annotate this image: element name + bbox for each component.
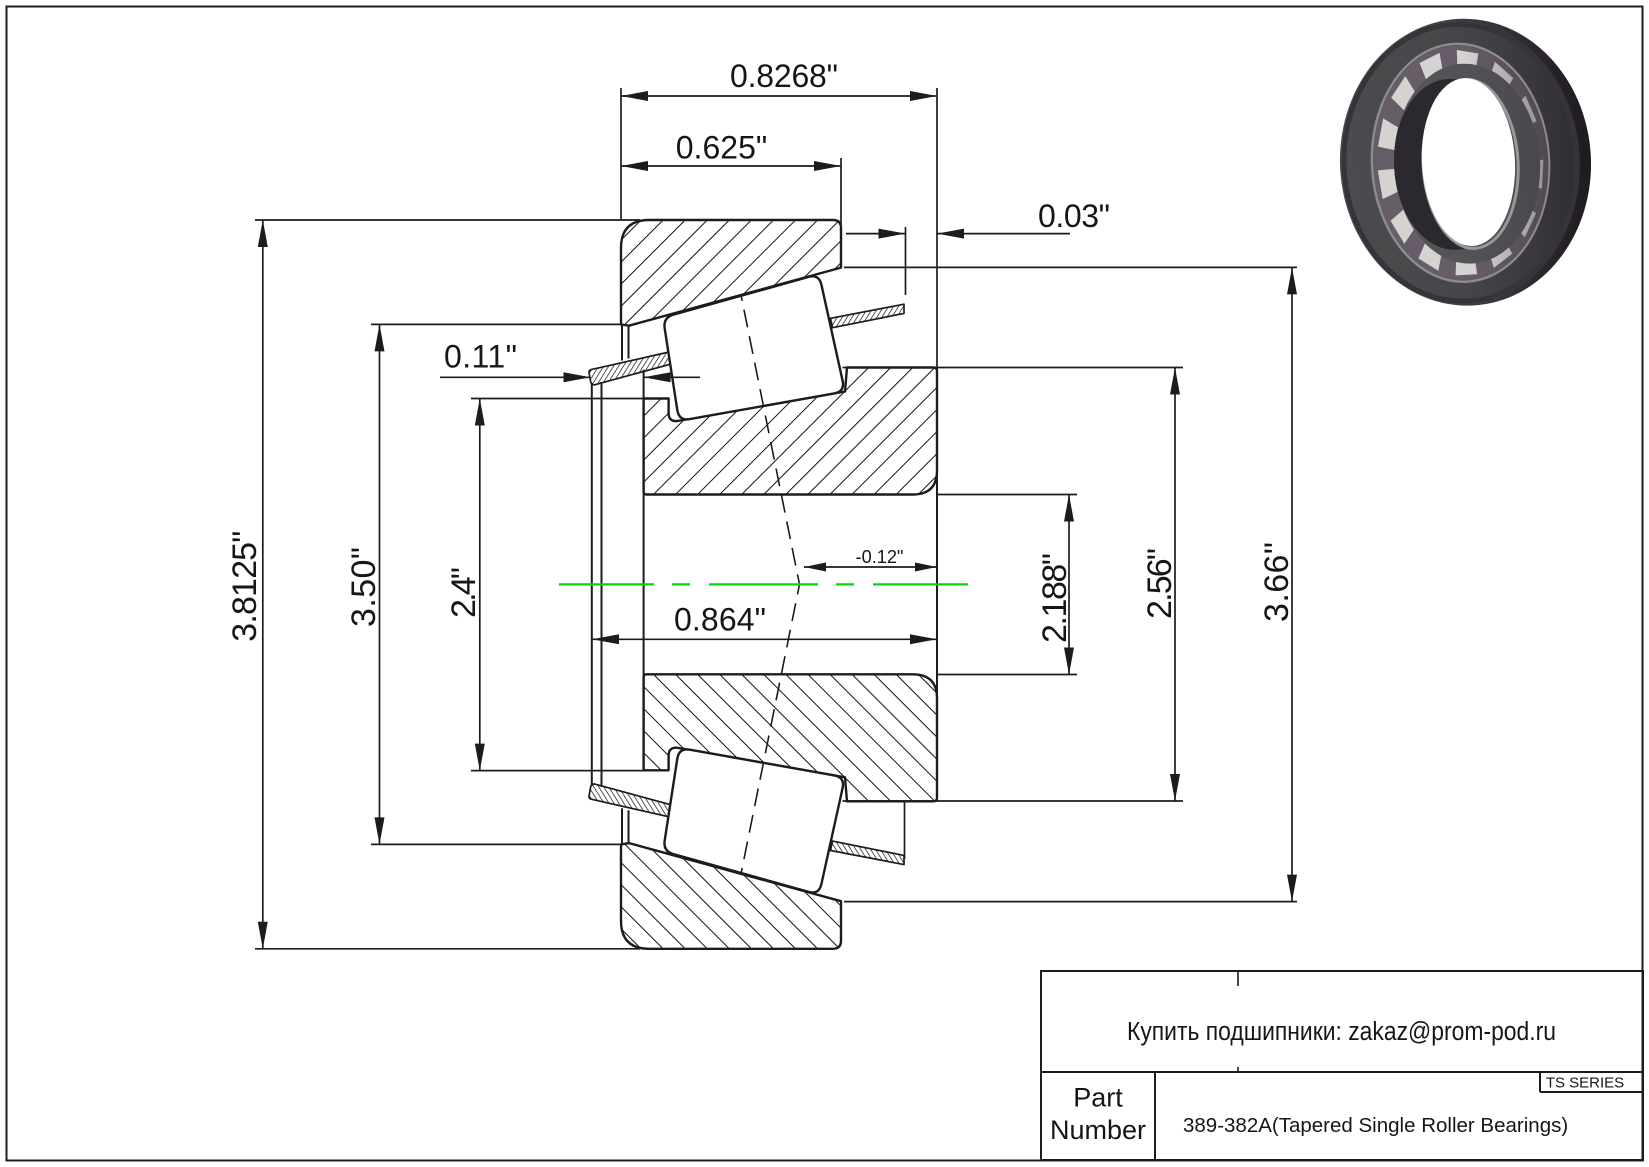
svg-text:3.66": 3.66": [1258, 542, 1296, 622]
svg-text:2.56": 2.56": [1141, 548, 1179, 619]
svg-text:0.03": 0.03": [1038, 198, 1110, 234]
svg-text:0.864": 0.864": [674, 602, 766, 638]
svg-text:389-382A(Tapered Single Roller: 389-382A(Tapered Single Roller Bearings): [1183, 1114, 1568, 1137]
svg-text:0.8268": 0.8268": [730, 58, 838, 94]
svg-text:0.11": 0.11": [444, 339, 517, 375]
svg-text:TS SERIES: TS SERIES: [1546, 1075, 1624, 1092]
svg-text:-0.12": -0.12": [856, 546, 904, 567]
svg-text:0.625": 0.625": [676, 130, 768, 166]
svg-text:Number: Number: [1050, 1115, 1146, 1145]
svg-text:2.4": 2.4": [445, 567, 483, 618]
svg-text:3.8125": 3.8125": [226, 531, 264, 642]
svg-text:Купить подшипники: zakaz@prom-: Купить подшипники: zakaz@prom-pod.ru: [1127, 1018, 1556, 1046]
svg-text:2.188": 2.188": [1036, 553, 1074, 643]
svg-text:3.50": 3.50": [345, 547, 383, 627]
svg-text:Part: Part: [1073, 1083, 1123, 1113]
